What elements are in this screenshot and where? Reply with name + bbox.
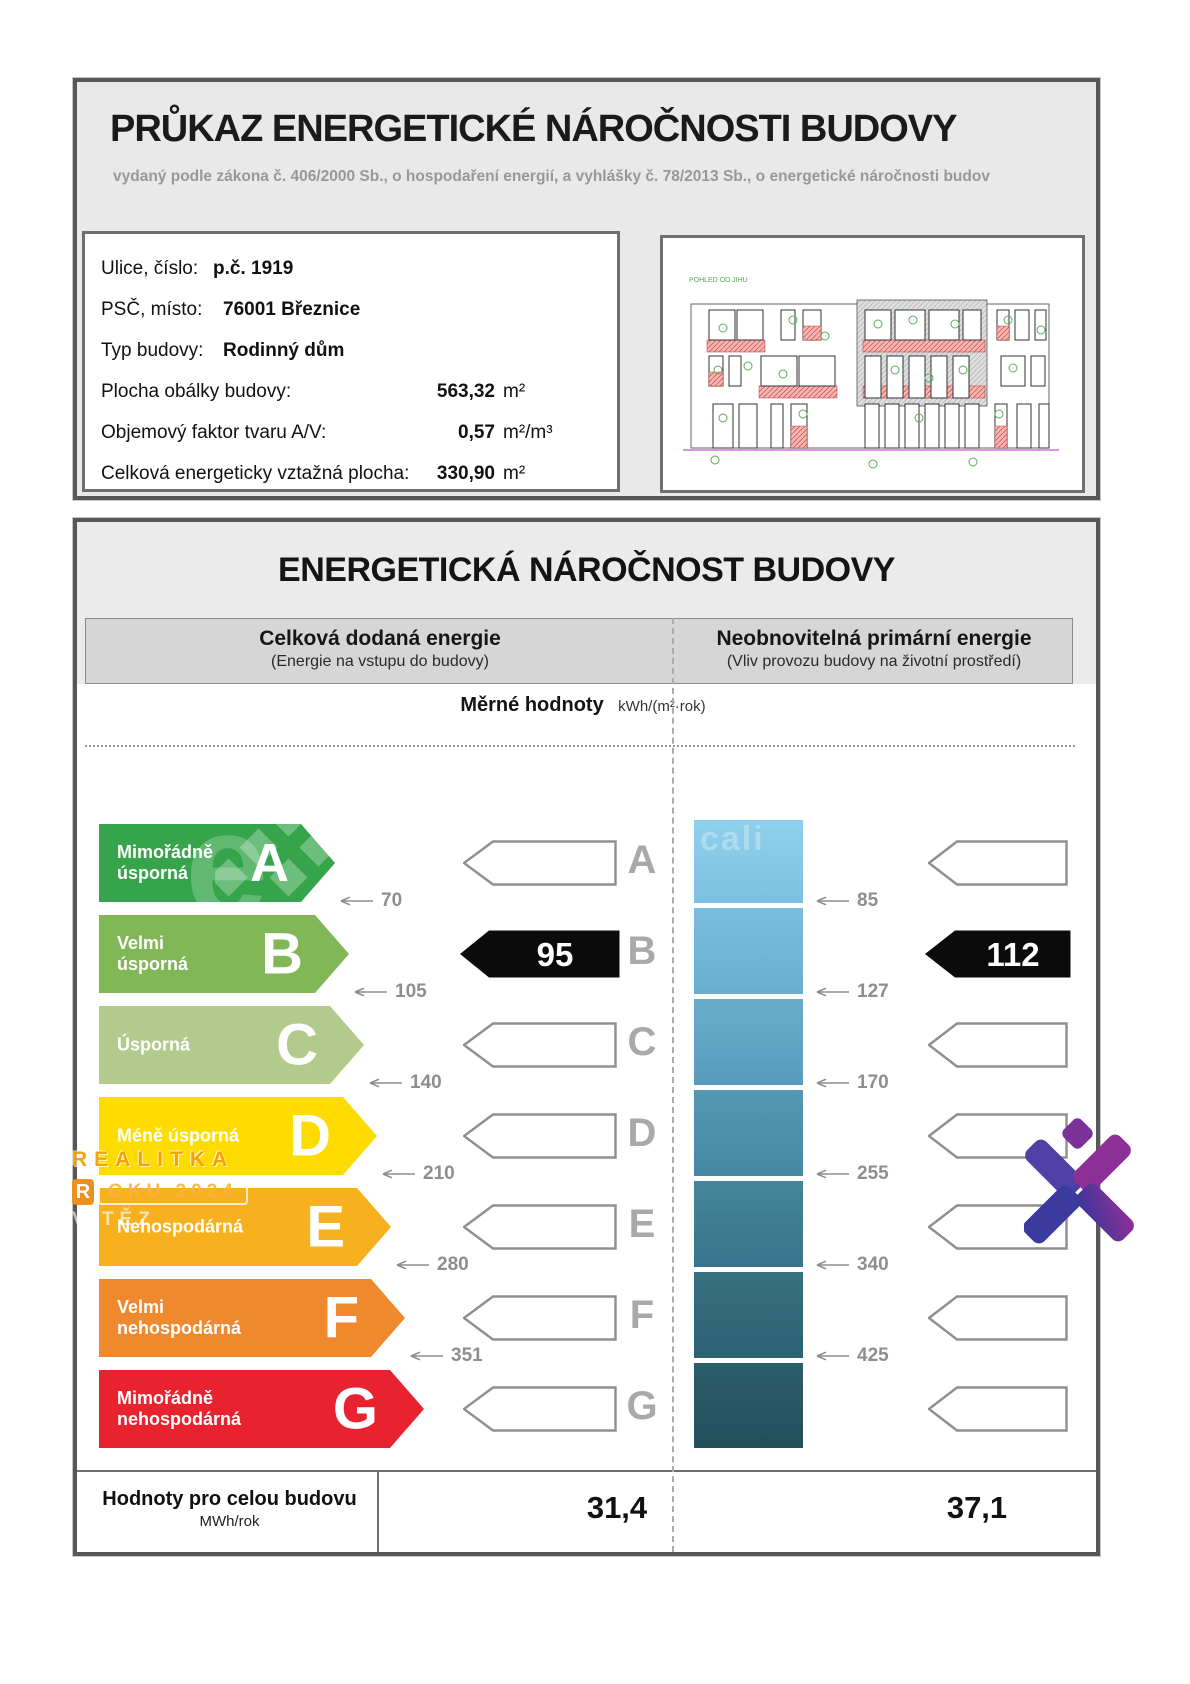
threshold-right-340: 340 [815,1255,889,1275]
info-value: 76001 Březnice [223,289,360,330]
energy-class-label-D: Méně úsporná [117,1125,239,1146]
building-facade-drawing: POHLED OD JIHU [663,238,1076,484]
info-unit: m²/m³ [503,412,553,453]
threshold-left-210: 210 [381,1164,455,1184]
threshold-value: 210 [423,1163,455,1185]
rating-value-delivered: 95 [537,936,574,973]
rating-arrow-delivered: 95 [459,929,621,984]
threshold-value: 170 [857,1072,889,1094]
energy-class-bar-B: Velmi úspornáB [99,915,349,993]
threshold-arrow-icon [815,986,851,998]
info-row-4: Plocha obálky budovy:563,32m² [85,371,617,412]
indicator-arrow-right-A [928,840,1068,891]
indicator-arrow-left-shape [463,1295,617,1341]
primary-energy-segment-E [694,1181,803,1267]
indicator-arrow-left-E [463,1204,617,1255]
indicator-arrow-left-shape [463,840,617,886]
indicator-arrow-left-D [463,1113,617,1164]
indicator-arrow-left-G [463,1386,617,1437]
rating-value-primary: 112 [986,936,1039,973]
scale-letter-A: A [625,838,659,883]
threshold-right-170: 170 [815,1073,889,1093]
rating-scale-area: Mimořádně úspornáAeAcali7085Velmi úsporn… [77,522,1096,1552]
info-label: Plocha obálky budovy: [101,371,291,412]
energy-class-letter-F: F [324,1285,359,1352]
indicator-arrow-left-shape [463,1113,617,1159]
threshold-left-280: 280 [395,1255,469,1275]
info-label: Typ budovy: [101,330,203,371]
column-divider [672,618,674,1552]
threshold-arrow-icon [339,895,375,907]
scale-letter-G: G [625,1384,659,1429]
realitka-watermark: REALITKA R OKU 2024 VÍTĚZ [72,1148,248,1231]
primary-energy-segment-C [694,999,803,1085]
info-row-1: Ulice, číslo:p.č. 1919 [85,248,617,289]
energy-class-bar-F: Velmi nehospodárnáF [99,1279,405,1357]
indicator-arrow-right-shape [928,840,1068,886]
rating-arrow-delivered-shape: 95 [459,929,621,979]
watermark-blue-text: cali [700,820,765,859]
document-title: PRŮKAZ ENERGETICKÉ NÁROČNOSTI BUDOVY [110,108,957,151]
threshold-arrow-icon [815,1259,851,1271]
threshold-arrow-icon [381,1168,417,1180]
info-value: 0,57 [407,412,495,453]
info-value: p.č. 1919 [213,248,293,289]
threshold-arrow-icon [815,1350,851,1362]
threshold-right-85: 85 [815,891,878,911]
building-info-box: Ulice, číslo:p.č. 1919PSČ, místo:76001 B… [82,231,620,492]
threshold-left-70: 70 [339,891,402,911]
energy-class-label-G: Mimořádně nehospodárná [117,1388,241,1430]
energy-class-bar-C: ÚspornáC [99,1006,364,1084]
scale-letter-F: F [625,1293,659,1338]
threshold-value: 127 [857,981,889,1003]
threshold-arrow-icon [368,1077,404,1089]
totals-unit: MWh/rok [82,1513,377,1530]
indicator-arrow-left-shape [463,1022,617,1068]
info-label: Objemový faktor tvaru A/V: [101,412,326,453]
scale-letter-E: E [625,1202,659,1247]
rating-box: ENERGETICKÁ NÁROČNOST BUDOVY Celková dod… [73,518,1100,1556]
indicator-arrow-right-shape [928,1386,1068,1432]
total-delivered-value: 31,4 [497,1490,737,1526]
threshold-value: 255 [857,1163,889,1185]
threshold-value: 280 [437,1254,469,1276]
info-value: 330,90 [407,453,495,494]
energy-class-label-A: Mimořádně úsporná [117,842,213,884]
threshold-arrow-icon [409,1350,445,1362]
totals-label-cell: Hodnoty pro celou budovu MWh/rok [82,1472,379,1552]
threshold-left-105: 105 [353,982,427,1002]
total-primary-value: 37,1 [857,1490,1097,1526]
indicator-arrow-right-G [928,1386,1068,1437]
threshold-right-127: 127 [815,982,889,1002]
drawing-caption: POHLED OD JIHU [689,277,748,284]
header-box: PRŮKAZ ENERGETICKÉ NÁROČNOSTI BUDOVY vyd… [73,78,1100,500]
primary-energy-segment-D [694,1090,803,1176]
threshold-value: 70 [381,890,402,912]
energy-class-letter-C: C [276,1012,318,1079]
threshold-value: 105 [395,981,427,1003]
energy-class-letter-E: E [306,1194,345,1261]
totals-row: Hodnoty pro celou budovu MWh/rok 31,4 37… [77,1470,1096,1552]
info-unit: m² [503,453,525,494]
info-label: Celková energeticky vztažná plocha: [101,453,409,494]
energy-class-bar-A: Mimořádně úspornáAe [99,824,335,902]
indicator-arrow-left-A [463,840,617,891]
purple-x-logo [1024,1106,1148,1250]
info-label: PSČ, místo: [101,289,202,330]
threshold-left-140: 140 [368,1073,442,1093]
totals-label: Hodnoty pro celou budovu [82,1488,377,1511]
energy-class-label-F: Velmi nehospodárná [117,1297,241,1339]
realitka-watermark-line2: R OKU 2024 [72,1178,248,1205]
scale-letter-B: B [625,929,659,974]
indicator-arrow-right-shape [928,1022,1068,1068]
realitka-watermark-year: OKU 2024 [98,1178,248,1205]
indicator-arrow-right-shape [928,1295,1068,1341]
threshold-arrow-icon [815,1168,851,1180]
rating-arrow-primary: 112 [924,929,1072,984]
energy-class-letter-B: B [261,921,303,988]
threshold-value: 351 [451,1345,483,1367]
energy-class-letter-D: D [289,1103,331,1170]
threshold-arrow-icon [395,1259,431,1271]
indicator-arrow-left-shape [463,1204,617,1250]
energy-class-letter-G: G [333,1376,378,1443]
indicator-arrow-right-F [928,1295,1068,1346]
info-row-5: Objemový faktor tvaru A/V:0,57m²/m³ [85,412,617,453]
scale-letter-D: D [625,1111,659,1156]
primary-energy-segment-G [694,1363,803,1448]
info-label: Ulice, číslo: [101,248,198,289]
threshold-right-255: 255 [815,1164,889,1184]
indicator-arrow-right-C [928,1022,1068,1073]
realitka-watermark-chip: R [72,1179,94,1205]
energy-class-label-C: Úsporná [117,1034,190,1055]
threshold-value: 140 [410,1072,442,1094]
primary-energy-segment-B [694,908,803,994]
info-row-2: PSČ, místo:76001 Březnice [85,289,617,330]
realitka-watermark-line3: VÍTĚZ [72,1209,248,1231]
indicator-arrow-left-C [463,1022,617,1073]
rating-arrow-primary-shape: 112 [924,929,1072,979]
info-value: Rodinný dům [223,330,344,371]
info-unit: m² [503,371,525,412]
indicator-arrow-left-shape [463,1386,617,1432]
info-row-3: Typ budovy:Rodinný dům [85,330,617,371]
info-row-6: Celková energeticky vztažná plocha:330,9… [85,453,617,494]
primary-energy-segment-A: cali [694,820,803,903]
primary-energy-segment-F [694,1272,803,1358]
certificate-page: PRŮKAZ ENERGETICKÉ NÁROČNOSTI BUDOVY vyd… [0,0,1190,1684]
energy-class-letter-A: A [250,832,289,894]
energy-class-bar-G: Mimořádně nehospodárnáG [99,1370,424,1448]
threshold-value: 425 [857,1345,889,1367]
threshold-arrow-icon [815,1077,851,1089]
document-subtitle: vydaný podle zákona č. 406/2000 Sb., o h… [113,168,990,186]
threshold-value: 340 [857,1254,889,1276]
building-drawing-box: POHLED OD JIHU [660,235,1085,493]
info-value: 563,32 [407,371,495,412]
threshold-arrow-icon [815,895,851,907]
realitka-watermark-line1: REALITKA [72,1148,248,1172]
threshold-left-351: 351 [409,1346,483,1366]
threshold-value: 85 [857,890,878,912]
threshold-arrow-icon [353,986,389,998]
indicator-arrow-left-F [463,1295,617,1346]
energy-class-label-B: Velmi úsporná [117,933,188,975]
threshold-right-425: 425 [815,1346,889,1366]
scale-letter-C: C [625,1020,659,1065]
